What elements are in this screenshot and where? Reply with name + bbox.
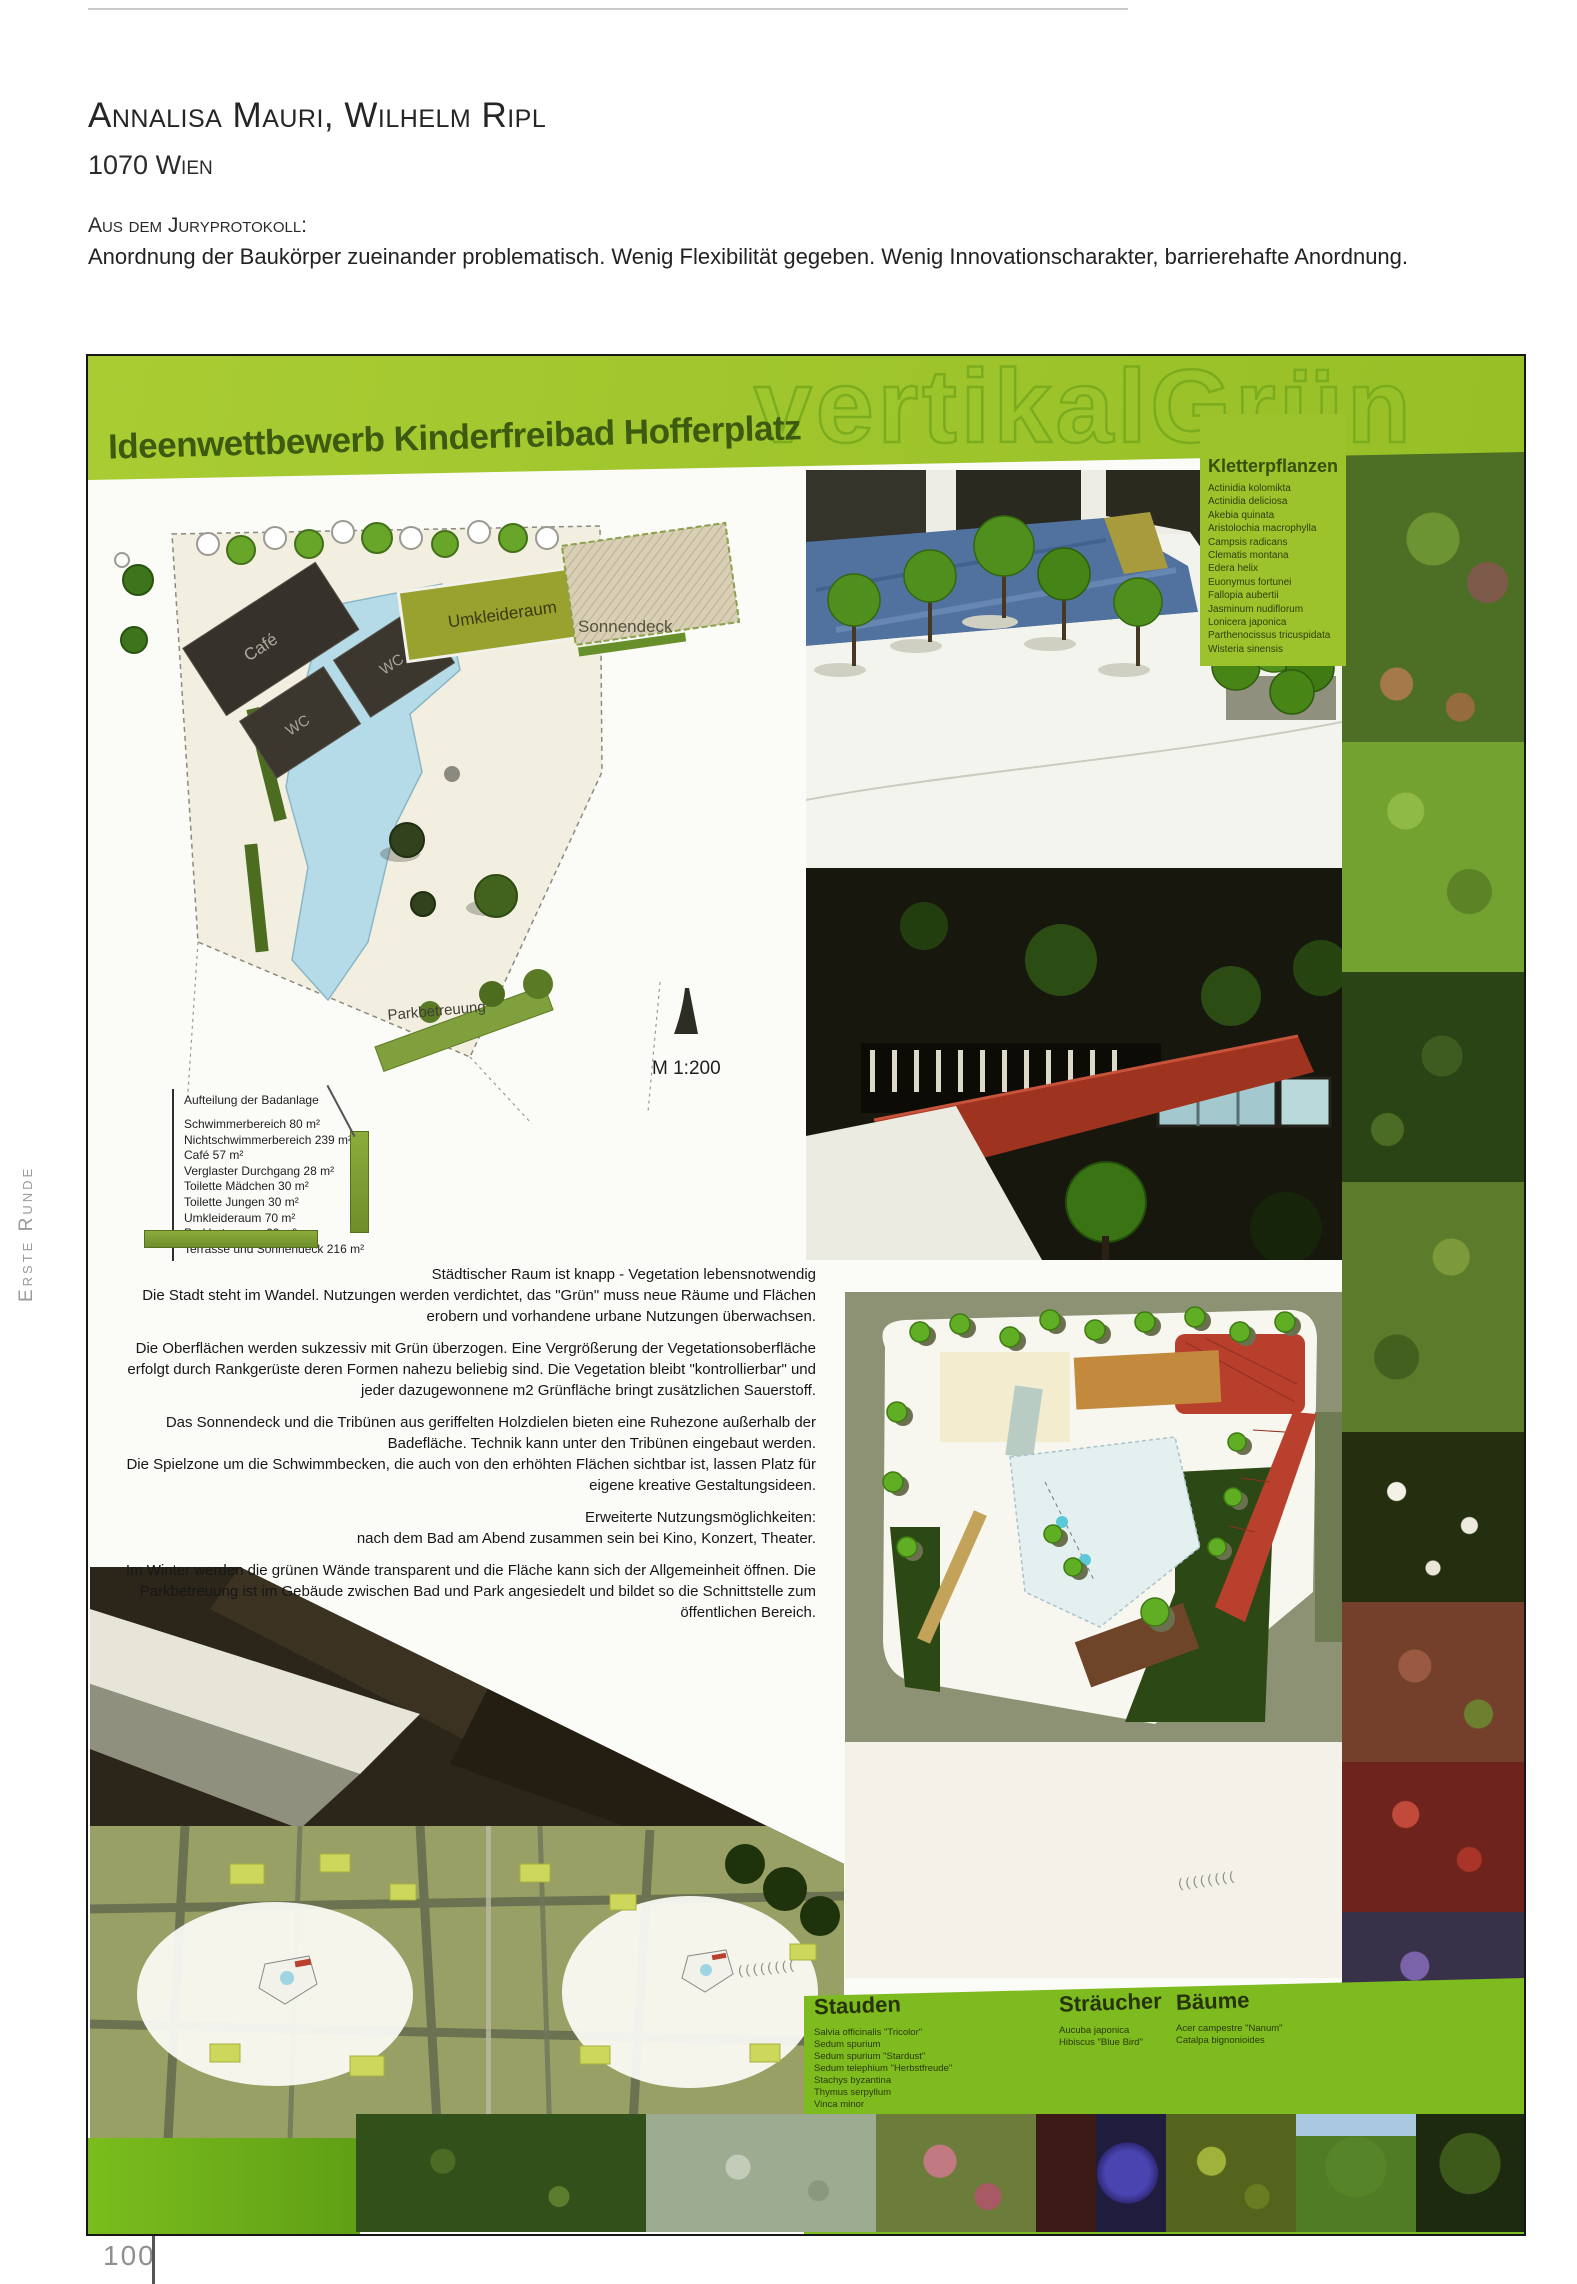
- area-row: Toilette Mädchen 30 m²: [184, 1179, 419, 1195]
- plant-item: Hibiscus "Blue Bird": [1059, 2037, 1162, 2049]
- dark-tree-photo: [1416, 2114, 1524, 2232]
- plant-item: Sedum spurium: [814, 2039, 952, 2051]
- description-paragraph: Die Oberflächen werden sukzessiv mit Grü…: [104, 1338, 816, 1401]
- plant-item: Edera helix: [1208, 562, 1346, 575]
- white-flowers-photo: [1342, 1432, 1524, 1602]
- authors-heading: Annalisa Mauri, Wilhelm Ripl: [88, 96, 546, 136]
- area-row: Schwimmerbereich 80 m²: [184, 1117, 419, 1133]
- straeucher-title: Sträucher: [1059, 1988, 1163, 2018]
- baeume-title: Bäume: [1176, 1986, 1283, 2016]
- jury-protocol-label: Aus dem Juryprotokoll:: [88, 214, 307, 238]
- plant-item: Euonymus fortunei: [1208, 576, 1346, 589]
- red-leaves-photo: [1342, 1602, 1524, 1762]
- north-arrow-icon: [674, 988, 698, 1034]
- catalog-page: Annalisa Mauri, Wilhelm Ripl 1070 Wien A…: [0, 0, 1577, 2284]
- green-bar: [144, 1230, 318, 1248]
- area-row: Café 57 m²: [184, 1148, 419, 1164]
- plant-item: Salvia officinalis "Tricolor": [814, 2027, 952, 2039]
- dark-foliage-photo: [1036, 2114, 1096, 2232]
- silver-foliage-photo: [646, 2114, 876, 2232]
- plant-item: Fallopia aubertii: [1208, 589, 1346, 602]
- plant-item: Lonicera japonica: [1208, 616, 1346, 629]
- plant-item: Thymus serpyllum: [814, 2087, 952, 2099]
- sedum-flowers-photo: [876, 2114, 1036, 2232]
- description-paragraph: Im Winter werden die grünen Wände transp…: [104, 1560, 816, 1623]
- area-row: Nichtschwimmerbereich 239 m²: [184, 1133, 419, 1149]
- plant-item: Sedum spurium "Stardust": [814, 2051, 952, 2063]
- yellow-foliage-photo: [1166, 2114, 1296, 2232]
- rendering-tribune: [806, 868, 1342, 1260]
- area-row: Verglaster Durchgang 28 m²: [184, 1164, 419, 1180]
- green-bar: [350, 1131, 369, 1233]
- foliage-photo: [1342, 742, 1524, 972]
- plant-item: Aristolochia macrophylla: [1208, 522, 1346, 535]
- plant-item: Aucuba japonica: [1059, 2025, 1162, 2037]
- page-number-rule: [152, 2234, 155, 2284]
- kiwi-vine-photo: [1342, 452, 1524, 742]
- area-table-title: Aufteilung der Badanlage: [184, 1093, 419, 1107]
- foliage-photo: [1342, 1182, 1524, 1432]
- description-paragraph: Das Sonnendeck und die Tribünen aus geri…: [104, 1412, 816, 1496]
- plant-item: Clematis montana: [1208, 549, 1346, 562]
- scale-label: M 1:200: [652, 1058, 721, 1079]
- location-heading: 1070 Wien: [88, 150, 213, 181]
- plant-item: Actinidia deliciosa: [1208, 495, 1346, 508]
- site-plan-colored: [845, 1292, 1377, 1742]
- orange-building: [1074, 1350, 1222, 1410]
- red-flowers-photo: [1342, 1762, 1524, 1912]
- sonnendeck-label: Sonnendeck: [578, 617, 673, 636]
- plant-item: Catalpa bignonioides: [1176, 2035, 1283, 2047]
- jury-protocol-text: Anordnung der Baukörper zueinander probl…: [88, 242, 1433, 272]
- competition-poster: vertikalGrün Ideenwettbewerb Kinderfreib…: [86, 354, 1526, 2236]
- lawn-photo: [88, 2138, 360, 2234]
- blue-flower-photo: [1096, 2114, 1166, 2232]
- plant-item: Parthenocissus tricuspidata: [1208, 629, 1346, 642]
- plan-margin-area: [845, 1742, 1342, 1978]
- area-row: Umkleideraum 70 m²: [184, 1211, 419, 1227]
- kletterpflanzen-list: Kletterpflanzen Actinidia kolomikta Acti…: [1200, 414, 1346, 666]
- hedge-photo: [356, 2114, 646, 2232]
- kletterpflanzen-title: Kletterpflanzen: [1208, 456, 1346, 477]
- plant-item: Actinidia kolomikta: [1208, 482, 1346, 495]
- straeucher-list: Sträucher Aucuba japonica Hibiscus "Blue…: [1059, 1990, 1162, 2049]
- description-paragraph: Städtischer Raum ist knapp - Vegetation …: [104, 1264, 816, 1327]
- plant-item: Stachys byzantina: [814, 2075, 952, 2087]
- plant-item: Akebia quinata: [1208, 509, 1346, 522]
- trees-sky-photo: [1296, 2114, 1416, 2232]
- description-paragraph: Erweiterte Nutzungsmöglichkeiten: nach d…: [104, 1507, 816, 1549]
- area-row: Toilette Jungen 30 m²: [184, 1195, 419, 1211]
- top-rule: [88, 8, 1128, 10]
- plant-photo-strip: [1342, 452, 1524, 2234]
- baeume-list: Bäume Acer campestre "Nanum" Catalpa big…: [1176, 1988, 1283, 2047]
- plant-item: Wisteria sinensis: [1208, 643, 1346, 656]
- plant-item: Vinca minor: [814, 2099, 952, 2111]
- plant-item: Jasminum nudiflorum: [1208, 603, 1346, 616]
- plant-item: Sedum telephium "Herbstfreude": [814, 2063, 952, 2075]
- bottom-photo-strip: [356, 2114, 1524, 2232]
- plant-item: Campsis radicans: [1208, 536, 1346, 549]
- project-description: Städtischer Raum ist knapp - Vegetation …: [104, 1264, 816, 1634]
- plant-item: Acer campestre "Nanum": [1176, 2023, 1283, 2035]
- round-sidebar-label: Erste Runde: [16, 1166, 38, 1302]
- foliage-photo: [1342, 972, 1524, 1182]
- model-photo: [90, 1564, 844, 2140]
- stauden-list: Stauden Salvia officinalis "Tricolor" Se…: [814, 1992, 952, 2111]
- page-number: 100: [103, 2240, 156, 2272]
